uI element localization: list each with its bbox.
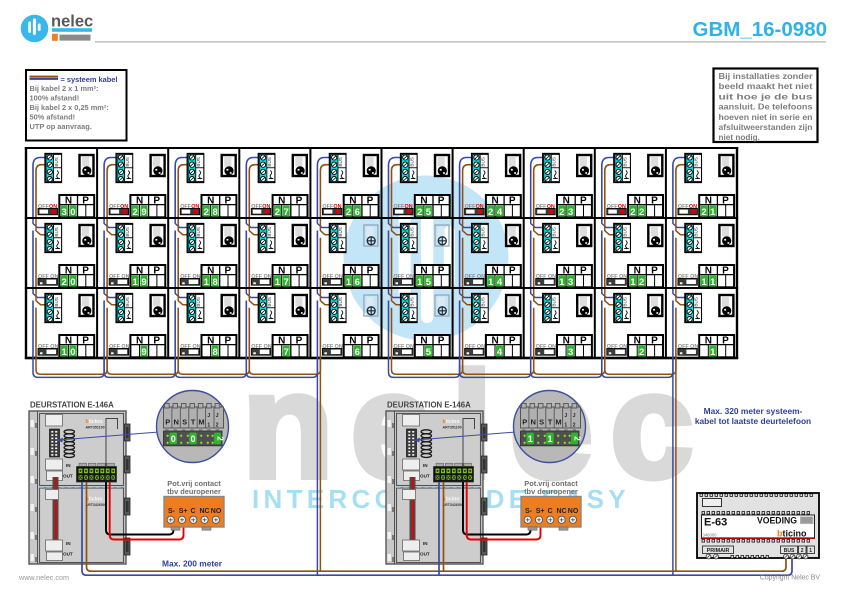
- svg-text:P: P: [224, 196, 231, 207]
- svg-text:N: N: [136, 266, 143, 277]
- svg-text:ART351100: ART351100: [443, 426, 462, 430]
- svg-text:N: N: [420, 196, 427, 207]
- svg-text:BUS: BUS: [409, 157, 414, 166]
- svg-text:IN: IN: [66, 463, 71, 468]
- svg-text:1: 1: [701, 277, 707, 288]
- svg-text:uit hoe je de bus: uit hoe je de bus: [719, 92, 814, 101]
- svg-text:BUS: BUS: [267, 227, 272, 236]
- svg-text:Max. 320 meter systeem-: Max. 320 meter systeem-: [704, 406, 803, 416]
- svg-text:N: N: [207, 266, 214, 277]
- svg-text:P: P: [367, 196, 374, 207]
- svg-text:0: 0: [70, 347, 75, 358]
- svg-text:BUS: BUS: [267, 297, 272, 306]
- svg-text:P: P: [82, 196, 89, 207]
- svg-text:IN: IN: [423, 463, 428, 468]
- svg-text:niet nodig.: niet nodig.: [719, 133, 760, 142]
- svg-text:DEURSTATION E-146A: DEURSTATION E-146A: [387, 401, 471, 410]
- svg-text:100% afstand!: 100% afstand!: [30, 94, 80, 103]
- svg-text:N: N: [65, 196, 72, 207]
- svg-text:BUS: BUS: [338, 157, 343, 166]
- svg-text:2: 2: [573, 436, 582, 441]
- svg-text:NO: NO: [568, 508, 579, 515]
- svg-text:1: 1: [710, 277, 716, 288]
- svg-text:OUT: OUT: [420, 552, 430, 557]
- svg-text:P: P: [722, 196, 729, 207]
- svg-text:OUT: OUT: [420, 474, 430, 479]
- svg-text:T: T: [548, 418, 553, 427]
- svg-text:BUS: BUS: [196, 227, 201, 236]
- svg-text:1: 1: [417, 277, 423, 288]
- svg-text:BUS: BUS: [196, 297, 201, 306]
- svg-text:N: N: [136, 196, 143, 207]
- svg-text:S: S: [182, 418, 187, 427]
- svg-text:bticino: bticino: [86, 497, 103, 503]
- svg-text:C: C: [191, 508, 196, 515]
- svg-text:beeld maakt het niet: beeld maakt het niet: [719, 82, 813, 91]
- svg-text:N: N: [420, 336, 427, 347]
- svg-text:8: 8: [212, 347, 217, 358]
- svg-text:N: N: [278, 196, 285, 207]
- svg-text:BUS: BUS: [125, 227, 130, 236]
- svg-text:P: P: [153, 196, 160, 207]
- svg-text:P: P: [438, 266, 445, 277]
- svg-text:Max. 200 meter: Max. 200 meter: [162, 559, 223, 569]
- svg-text:J: J: [573, 413, 576, 419]
- svg-text:BUS: BUS: [480, 227, 485, 236]
- svg-text:346000: 346000: [703, 533, 718, 538]
- svg-text:8: 8: [212, 207, 217, 218]
- svg-text:N: N: [634, 336, 641, 347]
- svg-text:2: 2: [216, 436, 225, 441]
- svg-text:ART342600: ART342600: [443, 503, 462, 507]
- svg-text:BUS: BUS: [54, 227, 59, 236]
- svg-text:4: 4: [497, 347, 503, 358]
- svg-text:P: P: [651, 196, 658, 207]
- svg-text:N: N: [705, 196, 712, 207]
- svg-text:P: P: [82, 266, 89, 277]
- svg-text:1: 1: [564, 423, 567, 429]
- svg-text:2: 2: [630, 207, 635, 218]
- svg-text:BUS: BUS: [196, 157, 201, 166]
- svg-text:4: 4: [497, 277, 503, 288]
- svg-text:N: N: [278, 336, 285, 347]
- svg-text:N: N: [173, 418, 178, 427]
- svg-text:P: P: [165, 418, 170, 427]
- svg-text:1: 1: [809, 548, 812, 554]
- svg-text:N: N: [491, 336, 498, 347]
- svg-text:BUS: BUS: [409, 297, 414, 306]
- svg-text:2: 2: [801, 548, 804, 554]
- svg-text:BUS: BUS: [480, 157, 485, 166]
- svg-text:N: N: [563, 196, 570, 207]
- svg-text:2: 2: [639, 347, 644, 358]
- svg-text:P: P: [722, 336, 729, 347]
- svg-text:P: P: [296, 336, 303, 347]
- svg-text:bticino: bticino: [777, 529, 807, 539]
- svg-text:2: 2: [417, 207, 422, 218]
- svg-text:BUS: BUS: [694, 297, 699, 306]
- svg-text:BUS: BUS: [552, 297, 557, 306]
- svg-text:BUS: BUS: [125, 157, 130, 166]
- svg-text:Bij kabel 2 x 1 mm²:: Bij kabel 2 x 1 mm²:: [30, 84, 99, 93]
- svg-text:OUT: OUT: [63, 474, 73, 479]
- svg-text:T: T: [191, 418, 196, 427]
- svg-text:P: P: [580, 196, 587, 207]
- svg-text:P: P: [509, 266, 516, 277]
- svg-text:3: 3: [568, 207, 573, 218]
- svg-text:BUS: BUS: [552, 157, 557, 166]
- svg-text:NC: NC: [200, 508, 210, 515]
- svg-text:7: 7: [284, 347, 289, 358]
- svg-text:ART342600: ART342600: [86, 503, 105, 507]
- svg-text:M: M: [555, 418, 561, 427]
- svg-text:P: P: [438, 196, 445, 207]
- svg-text:3: 3: [61, 207, 66, 218]
- svg-text:1: 1: [528, 434, 533, 444]
- svg-text:GBM_16-0980: GBM_16-0980: [693, 18, 827, 41]
- svg-text:5: 5: [426, 207, 432, 218]
- svg-text:P: P: [509, 196, 516, 207]
- svg-text:9: 9: [141, 277, 146, 288]
- svg-text:9: 9: [141, 207, 146, 218]
- svg-text:N: N: [530, 418, 535, 427]
- svg-text:S-: S-: [525, 508, 533, 515]
- svg-text:BUS: BUS: [623, 297, 628, 306]
- svg-text:2: 2: [216, 423, 219, 429]
- svg-text:BUS: BUS: [267, 157, 272, 166]
- svg-text:N: N: [705, 266, 712, 277]
- svg-text:P: P: [224, 266, 231, 277]
- svg-text:2: 2: [701, 207, 706, 218]
- svg-text:BUS: BUS: [694, 227, 699, 236]
- svg-text:BUS: BUS: [125, 297, 130, 306]
- svg-text:aansluit. De telefoons: aansluit. De telefoons: [719, 103, 813, 112]
- svg-text:2: 2: [639, 277, 644, 288]
- svg-text:1: 1: [133, 277, 139, 288]
- svg-text:nelec: nelec: [51, 13, 93, 31]
- svg-text:NO: NO: [211, 508, 222, 515]
- svg-text:P: P: [509, 336, 516, 347]
- svg-text:1: 1: [204, 277, 210, 288]
- svg-text:N: N: [491, 266, 498, 277]
- svg-text:N: N: [65, 336, 72, 347]
- svg-text:1: 1: [710, 207, 716, 218]
- svg-text:N: N: [634, 266, 641, 277]
- svg-text:BUS: BUS: [623, 227, 628, 236]
- svg-text:OUT: OUT: [63, 552, 73, 557]
- svg-text:2: 2: [488, 207, 493, 218]
- svg-text:BUS: BUS: [552, 227, 557, 236]
- svg-text:N: N: [705, 336, 712, 347]
- svg-text:DEURSTATION E-146A: DEURSTATION E-146A: [30, 401, 114, 410]
- svg-text:P: P: [224, 336, 231, 347]
- svg-text:P: P: [722, 266, 729, 277]
- svg-text:BUS: BUS: [54, 297, 59, 306]
- svg-text:2: 2: [639, 207, 644, 218]
- svg-text:N: N: [420, 266, 427, 277]
- svg-text:S+: S+: [179, 508, 188, 515]
- svg-text:BUS: BUS: [338, 227, 343, 236]
- svg-text:N: N: [65, 266, 72, 277]
- svg-text:1: 1: [61, 347, 67, 358]
- svg-text:1: 1: [630, 277, 636, 288]
- svg-text:P: P: [367, 266, 374, 277]
- svg-text:50% afstand!: 50% afstand!: [30, 113, 76, 122]
- svg-text:N: N: [491, 196, 498, 207]
- svg-text:1: 1: [559, 277, 565, 288]
- svg-text:1: 1: [547, 434, 552, 444]
- svg-text:S: S: [539, 418, 544, 427]
- svg-text:N: N: [207, 336, 214, 347]
- svg-text:P: P: [296, 196, 303, 207]
- svg-text:tbv deuropener: tbv deuropener: [167, 487, 221, 496]
- svg-text:www.nelec.com: www.nelec.com: [18, 573, 69, 582]
- svg-text:BUS: BUS: [784, 548, 795, 554]
- svg-text:M: M: [198, 418, 204, 427]
- svg-text:2: 2: [61, 277, 66, 288]
- svg-text:P: P: [651, 266, 658, 277]
- svg-text:IN: IN: [423, 541, 428, 546]
- svg-text:2: 2: [133, 207, 138, 218]
- svg-text:ART351100: ART351100: [86, 426, 105, 430]
- svg-text:P: P: [438, 336, 445, 347]
- svg-text:IN: IN: [66, 541, 71, 546]
- svg-text:9: 9: [141, 347, 146, 358]
- svg-text:N: N: [563, 266, 570, 277]
- svg-text:2: 2: [346, 207, 351, 218]
- svg-text:BUS: BUS: [54, 157, 59, 166]
- svg-text:BUS: BUS: [480, 297, 485, 306]
- svg-text:1: 1: [207, 423, 210, 429]
- svg-text:P: P: [82, 336, 89, 347]
- svg-text:2: 2: [204, 207, 209, 218]
- svg-text:bticino: bticino: [443, 419, 460, 425]
- svg-text:afsluitweerstanden zijn: afsluitweerstanden zijn: [719, 123, 813, 132]
- svg-text:P: P: [296, 266, 303, 277]
- svg-text:N: N: [278, 266, 285, 277]
- svg-text:P: P: [522, 418, 527, 427]
- svg-text:1: 1: [346, 277, 352, 288]
- svg-text:P: P: [580, 266, 587, 277]
- svg-text:bticino: bticino: [443, 497, 460, 503]
- svg-text:N: N: [207, 196, 214, 207]
- svg-text:S+: S+: [536, 508, 545, 515]
- svg-text:= systeem kabel: = systeem kabel: [61, 75, 118, 84]
- svg-text:3: 3: [568, 347, 573, 358]
- svg-text:bticino: bticino: [86, 419, 103, 425]
- svg-text:0: 0: [190, 434, 195, 444]
- svg-text:1: 1: [488, 277, 494, 288]
- svg-text:J: J: [207, 413, 210, 419]
- svg-text:P: P: [580, 336, 587, 347]
- svg-text:1: 1: [275, 277, 281, 288]
- svg-text:hoeven niet in serie en: hoeven niet in serie en: [719, 113, 813, 122]
- svg-text:kabel tot laatste deurtelefoon: kabel tot laatste deurtelefoon: [695, 416, 811, 426]
- svg-text:N: N: [349, 336, 356, 347]
- svg-text:2: 2: [573, 423, 576, 429]
- svg-text:P: P: [153, 266, 160, 277]
- svg-text:J: J: [564, 413, 567, 419]
- svg-text:Bij installaties zonder: Bij installaties zonder: [719, 72, 814, 81]
- svg-text:BUS: BUS: [623, 157, 628, 166]
- svg-text:0: 0: [70, 207, 75, 218]
- svg-text:N: N: [349, 266, 356, 277]
- svg-text:4: 4: [497, 207, 503, 218]
- svg-text:S-: S-: [168, 508, 176, 515]
- svg-text:N: N: [634, 196, 641, 207]
- svg-text:6: 6: [355, 207, 360, 218]
- svg-text:5: 5: [426, 347, 432, 358]
- svg-text:N: N: [136, 336, 143, 347]
- svg-text:5: 5: [426, 277, 432, 288]
- svg-text:2: 2: [275, 207, 280, 218]
- svg-text:P: P: [153, 336, 160, 347]
- svg-text:BUS: BUS: [694, 157, 699, 166]
- svg-text:C: C: [548, 508, 553, 515]
- svg-text:7: 7: [284, 277, 289, 288]
- svg-text:0: 0: [171, 434, 176, 444]
- svg-text:P: P: [651, 336, 658, 347]
- svg-text:BUS: BUS: [409, 227, 414, 236]
- svg-text:N: N: [563, 336, 570, 347]
- svg-text:VOEDING: VOEDING: [757, 516, 797, 526]
- svg-text:E-63: E-63: [704, 517, 727, 529]
- svg-text:6: 6: [355, 347, 360, 358]
- svg-text:J: J: [216, 413, 219, 419]
- svg-text:tbv deuropener: tbv deuropener: [524, 487, 578, 496]
- svg-text:Copyright Nelec BV: Copyright Nelec BV: [760, 575, 821, 582]
- svg-text:N: N: [349, 196, 356, 207]
- svg-text:2: 2: [559, 207, 564, 218]
- svg-text:PRIMAIR: PRIMAIR: [707, 548, 730, 554]
- svg-text:0: 0: [70, 277, 75, 288]
- svg-text:8: 8: [212, 277, 217, 288]
- svg-text:3: 3: [568, 277, 573, 288]
- svg-text:BUS: BUS: [338, 297, 343, 306]
- svg-text:Bij kabel 2 x 0,25 mm²:: Bij kabel 2 x 0,25 mm²:: [30, 103, 109, 112]
- svg-text:NC: NC: [557, 508, 567, 515]
- svg-text:P: P: [367, 336, 374, 347]
- svg-text:7: 7: [284, 207, 289, 218]
- svg-text:1: 1: [710, 347, 716, 358]
- svg-text:UTP op aanvraag.: UTP op aanvraag.: [30, 122, 92, 131]
- svg-text:6: 6: [355, 277, 360, 288]
